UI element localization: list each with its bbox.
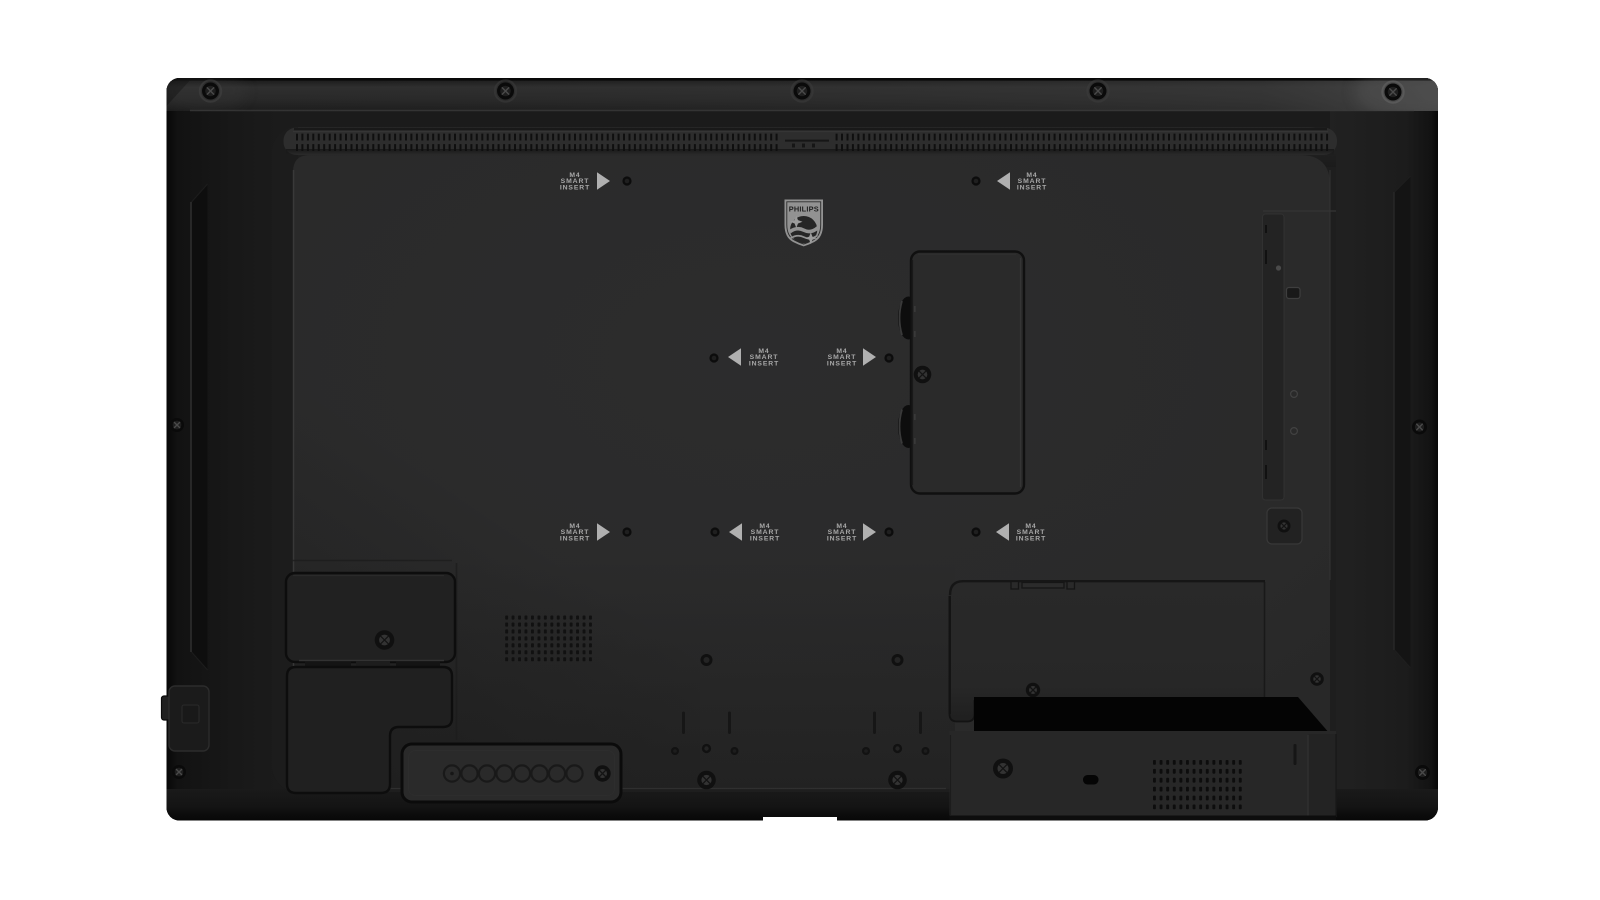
svg-text:INSERT: INSERT <box>749 361 779 368</box>
svg-text:INSERT: INSERT <box>827 361 857 368</box>
svg-text:INSERT: INSERT <box>750 536 780 543</box>
svg-text:INSERT: INSERT <box>560 185 590 192</box>
svg-text:INSERT: INSERT <box>1017 185 1047 192</box>
svg-text:INSERT: INSERT <box>560 536 590 543</box>
svg-text:INSERT: INSERT <box>827 536 857 543</box>
svg-text:INSERT: INSERT <box>1016 536 1046 543</box>
svg-text:PHILIPS: PHILIPS <box>789 205 819 214</box>
